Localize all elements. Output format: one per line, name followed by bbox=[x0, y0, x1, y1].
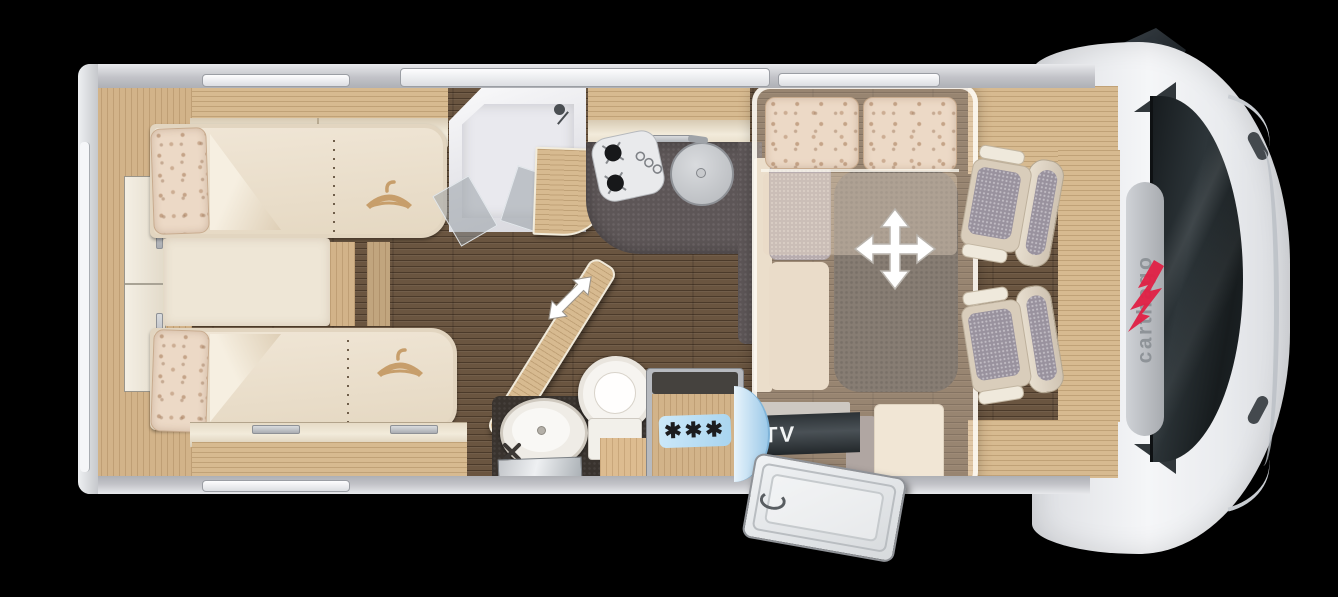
cab-counter-bottom bbox=[968, 420, 1118, 478]
dashboard bbox=[1058, 150, 1120, 422]
shower-head bbox=[554, 104, 565, 115]
bedside-chest bbox=[330, 242, 355, 326]
bedside-chest bbox=[367, 242, 390, 326]
window-top-lounge bbox=[778, 73, 940, 87]
locker-handle bbox=[390, 425, 438, 434]
brand-logo-red bbox=[1122, 258, 1168, 336]
bed-extension-dotted-line bbox=[333, 140, 335, 232]
awning-case bbox=[400, 68, 770, 87]
fridge-cabinet: ✱✱✱ bbox=[646, 368, 744, 482]
swivel-seat-driver bbox=[952, 141, 1067, 274]
overhead-shelf-bottom bbox=[192, 442, 467, 478]
wardrobe-door-split bbox=[125, 283, 165, 285]
fridge-top-vent bbox=[652, 372, 738, 394]
washroom-step bbox=[600, 438, 646, 480]
sink-drain bbox=[696, 168, 706, 178]
hanger-icon bbox=[362, 178, 416, 212]
swivel-seat-passenger bbox=[953, 277, 1066, 409]
rear-window bbox=[80, 142, 90, 472]
washbasin-drain bbox=[537, 426, 546, 435]
window-bottom-bedroom bbox=[202, 480, 350, 492]
toilet-seat bbox=[594, 372, 636, 414]
hanger-icon bbox=[372, 346, 428, 380]
overhead-shelf-top bbox=[192, 86, 448, 122]
pillow bbox=[150, 127, 210, 235]
drop-down-bed-frame-line bbox=[761, 169, 959, 172]
bed-extension-dotted-line bbox=[347, 340, 349, 424]
motorhome-floorplan: carthago bbox=[0, 0, 1338, 597]
move-bed-icon bbox=[852, 206, 938, 292]
pillow bbox=[150, 329, 210, 433]
bed-step-bench bbox=[163, 238, 330, 326]
drop-down-bed-pillow bbox=[765, 97, 859, 169]
window-top-bedroom bbox=[202, 74, 350, 87]
kitchen-overhead-cabinet bbox=[588, 86, 750, 122]
freezer-rating-badge: ✱✱✱ bbox=[658, 414, 731, 448]
locker-handle bbox=[252, 425, 300, 434]
drop-down-bed-pillow bbox=[863, 97, 957, 171]
